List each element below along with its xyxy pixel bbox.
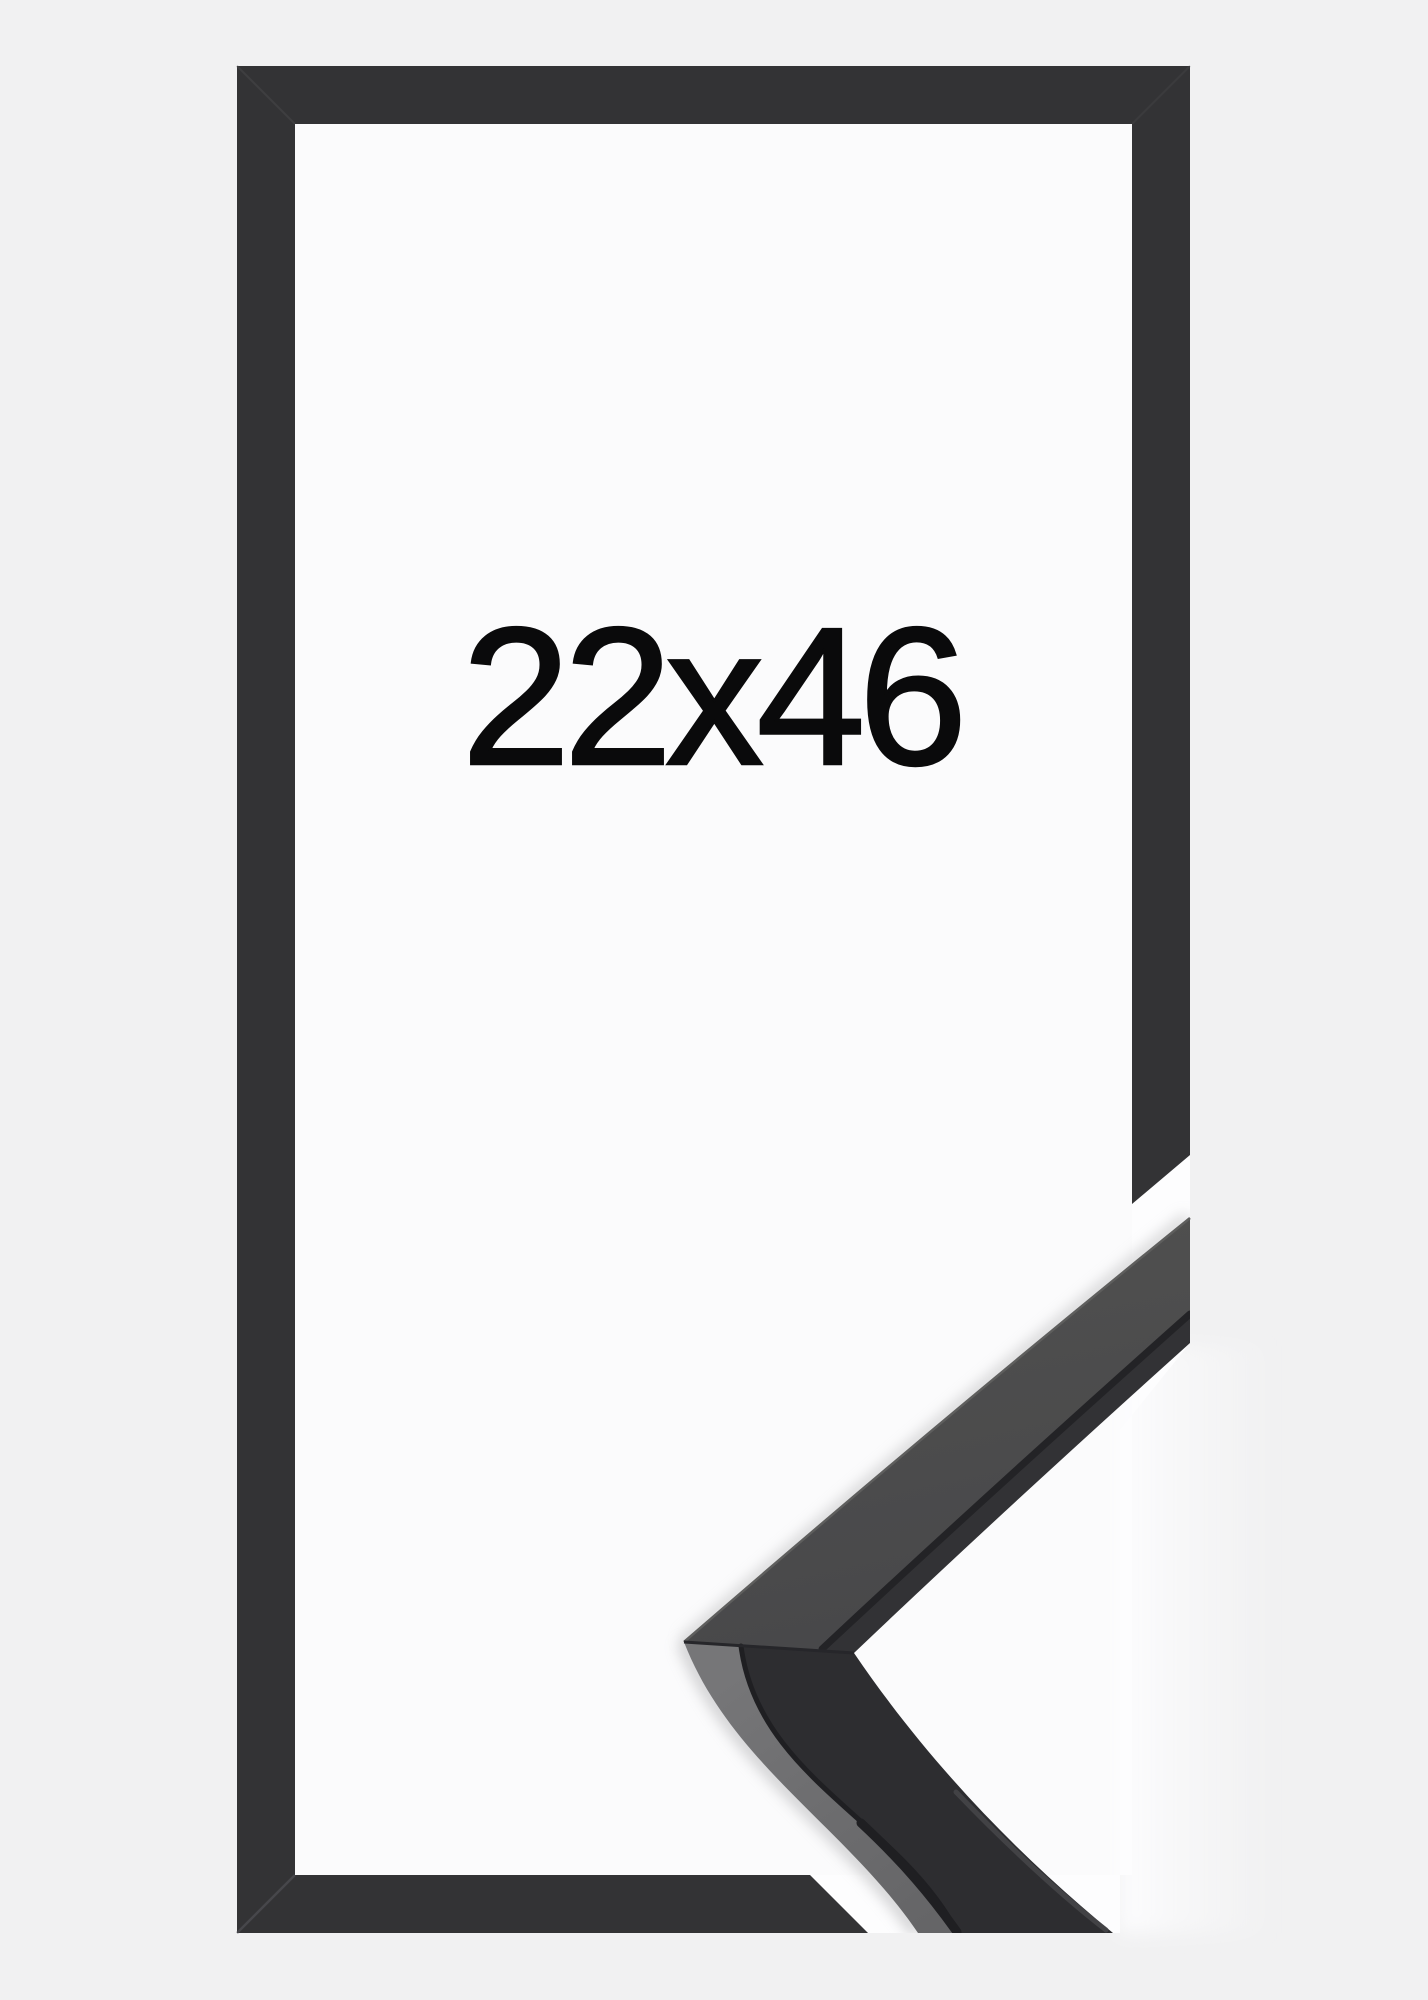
svg-text:22x46: 22x46 <box>461 587 960 806</box>
